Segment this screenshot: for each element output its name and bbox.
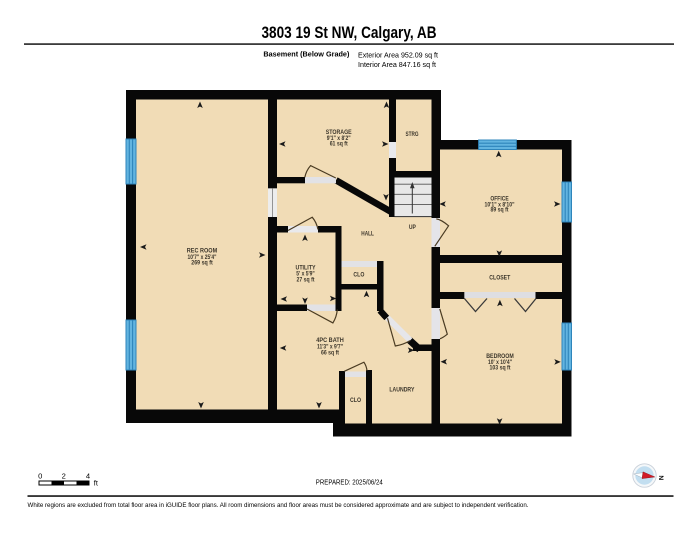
svg-text:11'3" x 9'7": 11'3" x 9'7"	[317, 344, 343, 350]
svg-text:0: 0	[38, 471, 42, 480]
svg-text:Exterior Area 952.09 sq ft: Exterior Area 952.09 sq ft	[358, 52, 438, 59]
svg-text:103 sq ft: 103 sq ft	[490, 366, 511, 372]
svg-text:4PC BATH: 4PC BATH	[316, 338, 344, 344]
svg-text:STORAGE: STORAGE	[326, 130, 352, 136]
svg-text:UTILITY: UTILITY	[296, 265, 316, 271]
svg-text:Basement (Below Grade): Basement (Below Grade)	[263, 51, 349, 58]
svg-text:66 sq ft: 66 sq ft	[321, 351, 339, 357]
svg-text:CLO: CLO	[353, 273, 364, 279]
svg-text:269 sq ft: 269 sq ft	[191, 261, 213, 267]
svg-text:LAUNDRY: LAUNDRY	[389, 388, 414, 394]
svg-text:Interior Area 847.16 sq ft: Interior Area 847.16 sq ft	[358, 62, 436, 69]
svg-text:UP: UP	[409, 225, 416, 231]
svg-text:4: 4	[86, 471, 90, 480]
svg-text:REC ROOM: REC ROOM	[187, 249, 217, 255]
svg-text:CLOSET: CLOSET	[489, 276, 510, 282]
svg-text:89 sq ft: 89 sq ft	[491, 208, 509, 214]
svg-text:ft: ft	[94, 479, 98, 488]
svg-text:2: 2	[62, 471, 66, 480]
svg-text:CLO: CLO	[350, 398, 361, 404]
svg-text:27 sq ft: 27 sq ft	[297, 278, 315, 284]
svg-text:N: N	[657, 475, 664, 480]
svg-text:3803 19 St NW, Calgary, AB: 3803 19 St NW, Calgary, AB	[262, 24, 437, 42]
svg-text:White regions are excluded fro: White regions are excluded from total fl…	[28, 502, 529, 509]
svg-text:HALL: HALL	[361, 232, 374, 238]
svg-text:BEDROOM: BEDROOM	[486, 354, 514, 360]
svg-text:PREPARED: 2025/06/24: PREPARED: 2025/06/24	[316, 477, 383, 486]
svg-text:STRG: STRG	[406, 132, 419, 138]
svg-text:61 sq ft: 61 sq ft	[330, 142, 348, 148]
